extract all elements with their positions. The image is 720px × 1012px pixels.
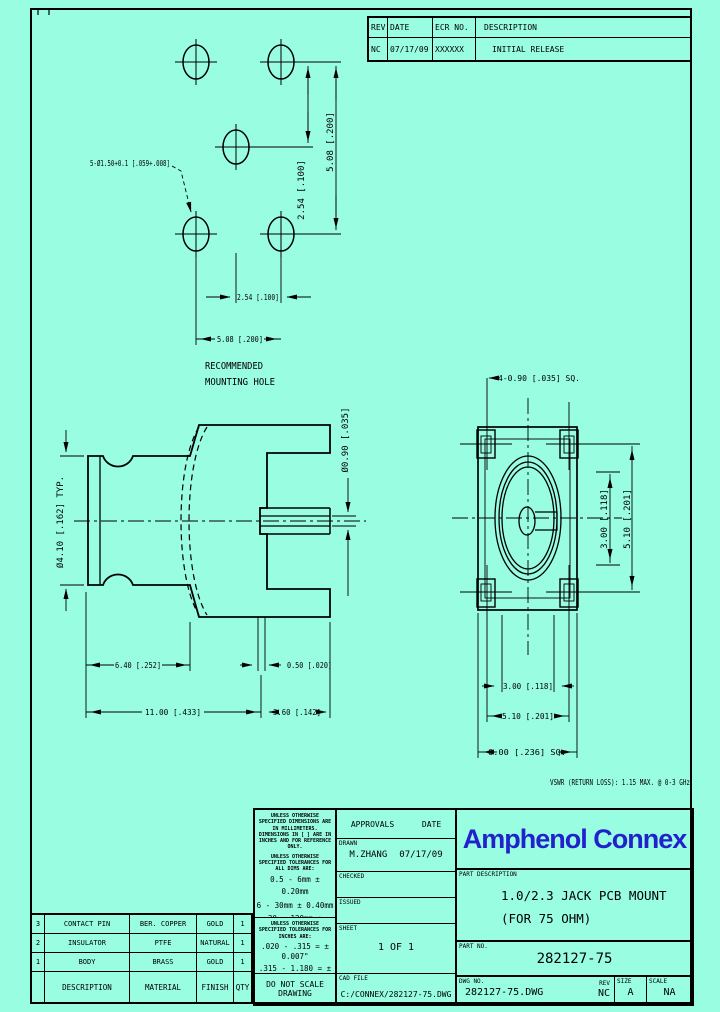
inch-tolerances: UNLESS OTHERWISE SPECIFIED TOLERANCES FO… (255, 918, 335, 974)
issued-label: ISSUED (337, 898, 455, 906)
rev-header-rev: REV. (369, 18, 388, 38)
description-header: DESCRIPTION (45, 972, 130, 1002)
checked-row: CHECKED (337, 872, 455, 898)
rev-value-ecr: XXXXXX (433, 38, 476, 60)
part-description-line1: 1.0/2.3 JACK PCB MOUNT (501, 885, 692, 908)
material-qty: 1 (234, 934, 251, 953)
material-finish: GOLD (197, 915, 234, 934)
drawn-row: DRAWN M.ZHANG 07/17/09 (337, 839, 455, 872)
checked-label: CHECKED (337, 872, 455, 880)
part-description-label: PART DESCRIPTION (457, 870, 692, 878)
sheet-value: 1 OF 1 (337, 942, 455, 953)
inch-tolerance-intro: UNLESS OTHERWISE SPECIFIED TOLERANCES FO… (255, 918, 335, 940)
dwg-number-cell: DWG NO. 282127-75.DWG REV NC (457, 977, 615, 1004)
cad-file-row: CAD FILE C:/CONNEX/282127-75.DWG (337, 974, 455, 1004)
qty-header: QTY (234, 972, 251, 1002)
part-description-cell: PART DESCRIPTION 1.0/2.3 JACK PCB MOUNT … (457, 870, 692, 942)
size-label: SIZE (615, 977, 646, 985)
mm-tolerance-intro: UNLESS OTHERWISE SPECIFIED TOLERANCES FO… (255, 851, 335, 873)
rev-value: NC (598, 988, 610, 999)
material-name: BER. COPPER (130, 915, 197, 934)
scale-cell: SCALE NA (647, 977, 692, 1004)
company-logo: Amphenol Connex (463, 824, 687, 855)
item-number: 3 (32, 915, 45, 934)
tolerance-notes-column: UNLESS OTHERWISE SPECIFIED DIMENSIONS AR… (255, 810, 337, 1004)
cad-file-label: CAD FILE (337, 974, 455, 982)
dwg-number-label: DWG NO. (457, 977, 543, 985)
issued-row: ISSUED (337, 898, 455, 924)
materials-table: 3 CONTACT PIN BER. COPPER GOLD 1 2 INSUL… (30, 913, 253, 1004)
rev-header-date: DATE (388, 18, 433, 38)
company-logo-cell: Amphenol Connex (457, 810, 692, 870)
rev-value-description: INITIAL RELEASE (476, 38, 690, 60)
sheet-row: SHEET 1 OF 1 (337, 924, 455, 974)
sheet-label: SHEET (337, 924, 455, 932)
rev-label: REV (598, 979, 610, 987)
item-number: 2 (32, 934, 45, 953)
mm-tolerance-line: 30 - 120mm ± 0.50mm (255, 911, 335, 918)
title-column: Amphenol Connex PART DESCRIPTION 1.0/2.3… (457, 810, 692, 1004)
do-not-scale-note: DO NOT SCALE DRAWING (255, 980, 335, 998)
mm-tolerance-line: 6 - 30mm ± 0.40mm (255, 898, 335, 912)
approvals-title: APPROVALS (351, 820, 394, 829)
material-description: INSULATOR (45, 934, 130, 953)
material-name: PTFE (130, 934, 197, 953)
inch-tolerance-line: .020 - .315 = ± 0.007" (255, 940, 335, 962)
part-number-label: PART NO. (457, 942, 692, 950)
drawn-label: DRAWN (337, 839, 455, 847)
drawn-date: 07/17/09 (399, 850, 442, 860)
rev-header-description: DESCRIPTION (476, 18, 690, 38)
units-and-mm-tolerances: UNLESS OTHERWISE SPECIFIED DIMENSIONS AR… (255, 810, 335, 918)
cad-drawing-page: 5-Ø1.50+0.1 [.059+.008] 2.54 [.100] 5.08… (0, 0, 720, 1012)
material-qty: 1 (234, 953, 251, 972)
material-header: MATERIAL (130, 972, 197, 1002)
scale-value: NA (647, 987, 692, 998)
finish-header: FINISH (197, 972, 234, 1002)
material-description: BODY (45, 953, 130, 972)
rev-value-date: 07/17/09 (388, 38, 433, 60)
units-note: UNLESS OTHERWISE SPECIFIED DIMENSIONS AR… (255, 810, 335, 851)
rev-header-ecr: ECR NO. (433, 18, 476, 38)
part-description-line2: (FOR 75 OHM) (501, 908, 692, 931)
mm-tolerance-line: 0.5 - 6mm ± 0.20mm (255, 872, 335, 897)
rev-value-rev: NC (369, 38, 388, 60)
size-value: A (615, 987, 646, 998)
date-header: DATE (422, 820, 441, 829)
cad-file-value: C:/CONNEX/282127-75.DWG (337, 990, 455, 999)
material-description: CONTACT PIN (45, 915, 130, 934)
approvals-column: APPROVALS DATE DRAWN M.ZHANG 07/17/09 CH… (337, 810, 457, 1004)
material-finish: GOLD (197, 953, 234, 972)
dwg-number-value: 282127-75.DWG (465, 987, 543, 998)
material-name: BRASS (130, 953, 197, 972)
scale-label: SCALE (647, 977, 692, 985)
drawing-info-row: DWG NO. 282127-75.DWG REV NC SIZE A SCAL… (457, 977, 692, 1004)
material-finish: NATURAL (197, 934, 234, 953)
revision-table: REV. DATE ECR NO. DESCRIPTION NC 07/17/0… (367, 16, 692, 62)
item-header-cell (32, 972, 45, 1002)
do-not-scale-cell: DO NOT SCALE DRAWING (255, 974, 335, 1004)
title-block: UNLESS OTHERWISE SPECIFIED DIMENSIONS AR… (253, 808, 694, 1006)
material-qty: 1 (234, 915, 251, 934)
approvals-header-row: APPROVALS DATE (337, 810, 455, 839)
drawn-by: M.ZHANG (349, 850, 387, 860)
part-number-cell: PART NO. 282127-75 (457, 942, 692, 977)
item-number: 1 (32, 953, 45, 972)
part-number-value: 282127-75 (457, 951, 692, 967)
size-cell: SIZE A (615, 977, 647, 1004)
inch-tolerance-line: .315 - 1.180 = ± 0.015" (255, 962, 335, 974)
